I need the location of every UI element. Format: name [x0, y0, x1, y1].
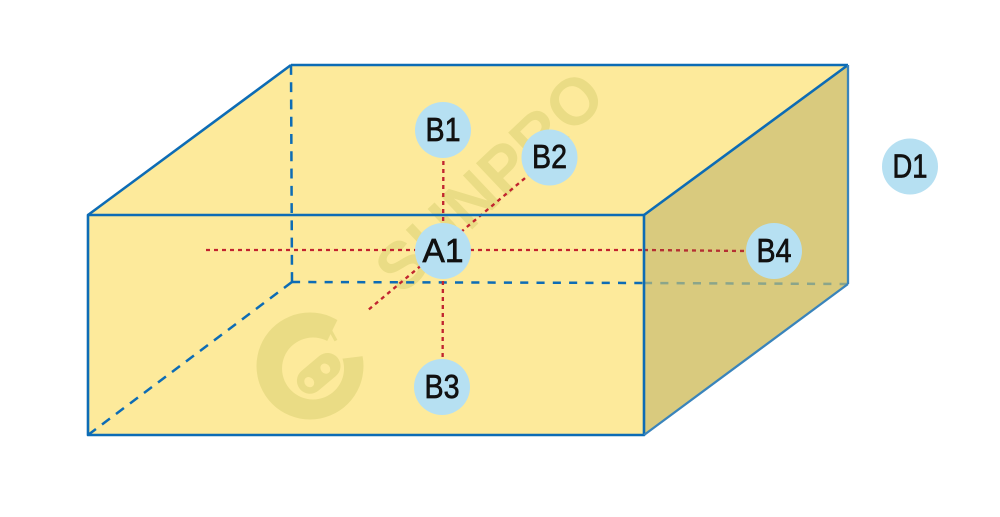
svg-text:B3: B3 — [425, 368, 460, 405]
svg-text:D1: D1 — [893, 148, 928, 185]
svg-text:B2: B2 — [532, 138, 567, 175]
svg-text:B1: B1 — [426, 111, 461, 148]
svg-text:B4: B4 — [757, 232, 792, 269]
svg-text:A1: A1 — [423, 232, 464, 269]
